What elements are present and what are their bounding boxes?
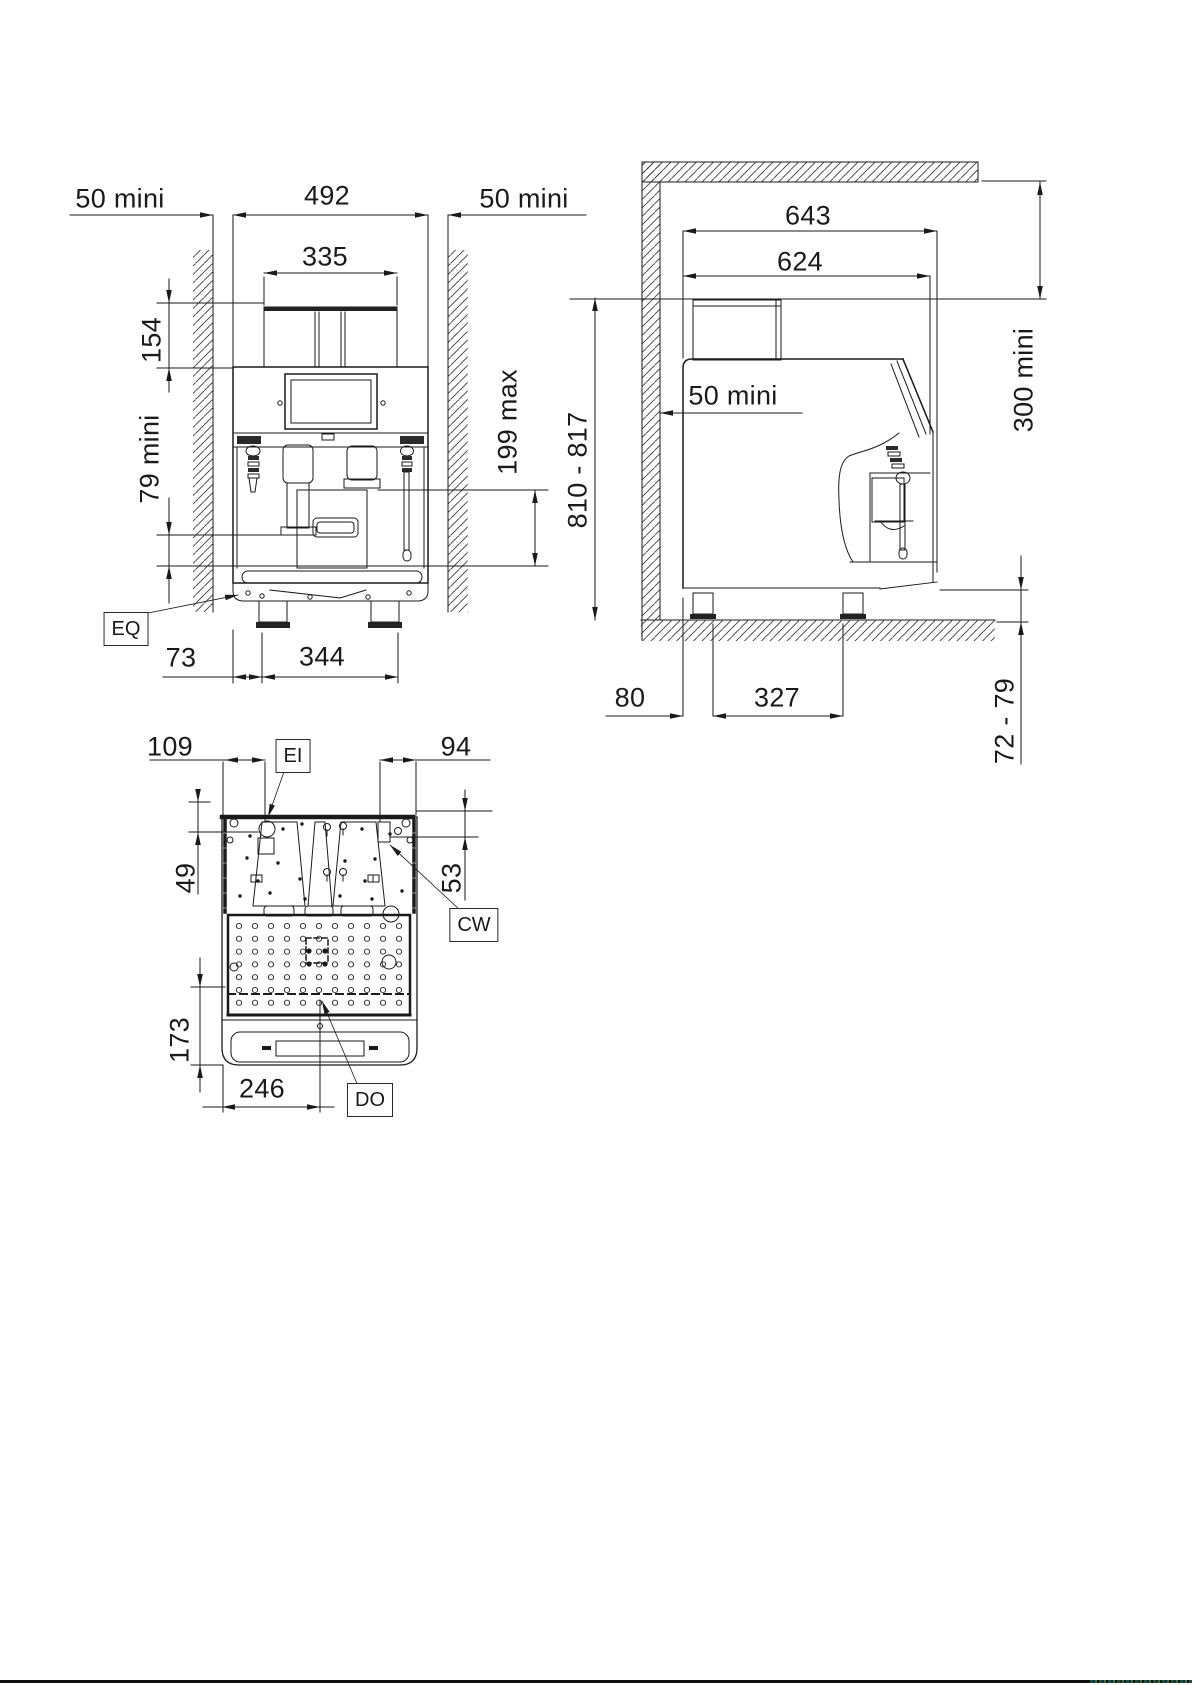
tag-cw: CW <box>449 908 498 942</box>
dim-top-clearance: 300 mini <box>1011 328 1038 432</box>
dim-rear-clearance: 50 mini <box>688 383 777 410</box>
dim-body-depth: 624 <box>777 249 823 276</box>
tag-ei: EI <box>276 739 311 773</box>
dim-overall-depth: 643 <box>785 203 831 230</box>
page-bottom-rule-tail <box>1090 1680 1192 1683</box>
dim-base-height: 72 - 79 <box>992 678 1019 764</box>
dim-cup-clearance: 79 mini <box>137 414 164 503</box>
dim-hopper-height: 154 <box>139 317 166 363</box>
installation-drawing-page: 50 mini 492 50 mini 335 154 79 mini 199 … <box>0 0 1192 1685</box>
dim-do-offset: 246 <box>239 1076 285 1103</box>
tag-eq: EQ <box>104 612 149 646</box>
dim-clearance-left: 50 mini <box>75 186 164 213</box>
dim-hopper-width: 335 <box>302 244 348 271</box>
dim-ei-offset: 109 <box>147 734 193 761</box>
dim-cw-depth: 53 <box>439 863 466 894</box>
technical-drawing <box>0 0 1192 1685</box>
dim-ei-depth: 49 <box>173 863 200 894</box>
dim-tray-depth: 173 <box>167 1017 194 1063</box>
dim-foot-rear-offset: 80 <box>615 685 646 712</box>
dim-foot-spacing-side: 327 <box>754 685 800 712</box>
dim-clearance-right: 50 mini <box>479 186 568 213</box>
dim-overall-width: 492 <box>304 183 350 210</box>
page-bottom-rule <box>0 1680 1090 1683</box>
dim-overall-height: 810 - 817 <box>565 412 592 529</box>
tag-do: DO <box>347 1083 393 1117</box>
dim-spout-max-height: 199 max <box>495 369 522 475</box>
dim-foot-offset: 73 <box>166 645 197 672</box>
dim-cw-offset: 94 <box>441 734 472 761</box>
dim-foot-spacing: 344 <box>299 644 345 671</box>
